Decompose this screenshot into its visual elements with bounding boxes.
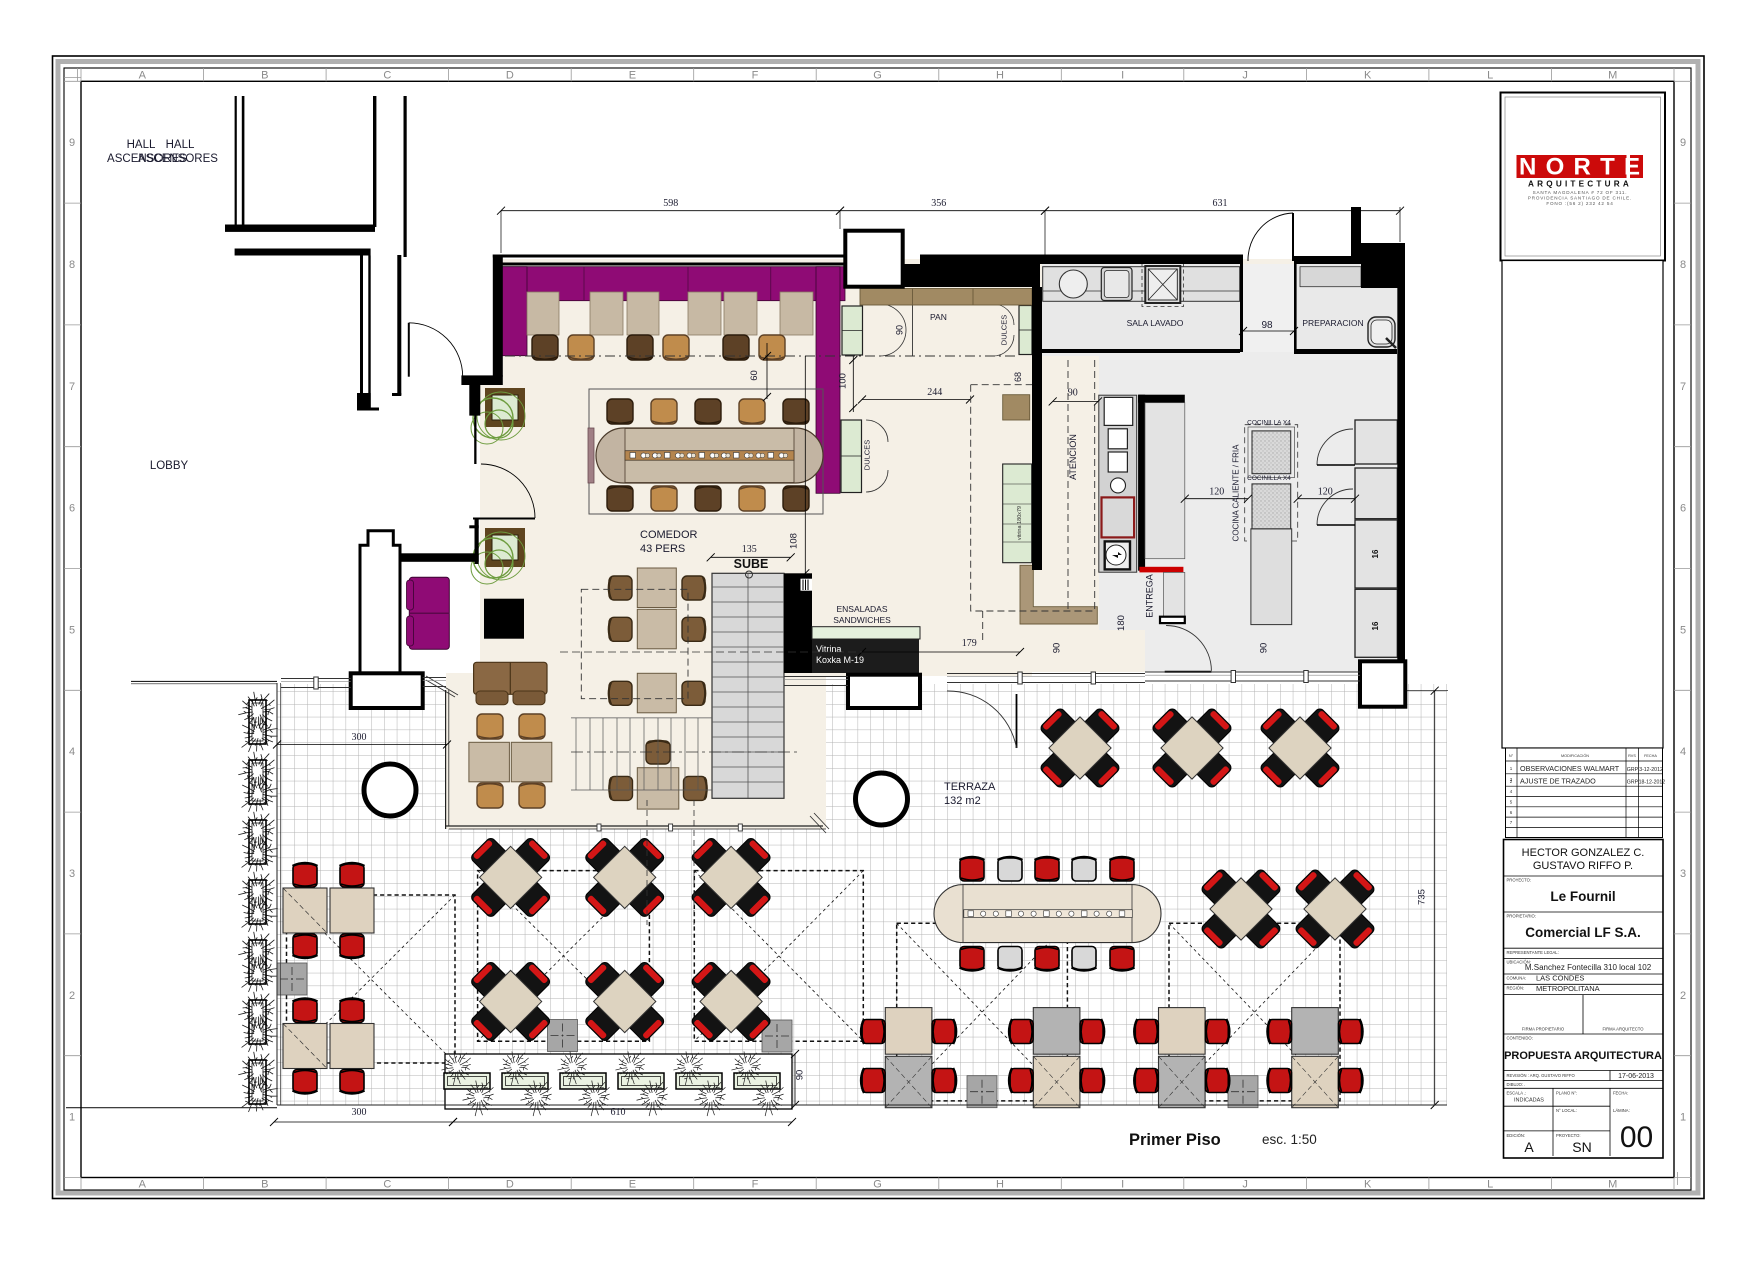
svg-text:3: 3	[69, 868, 75, 880]
svg-text:PROYECTO:: PROYECTO:	[1507, 878, 1532, 883]
svg-text:9: 9	[69, 137, 75, 149]
svg-text:3-12-2012: 3-12-2012	[1639, 767, 1663, 773]
svg-text:120: 120	[1318, 487, 1333, 498]
svg-text:16: 16	[1371, 621, 1380, 630]
svg-text:HECTOR GONZALEZ C.: HECTOR GONZALEZ C.	[1522, 847, 1645, 859]
svg-text:G: G	[873, 1178, 882, 1190]
svg-text:vitrina 180x79: vitrina 180x79	[1017, 506, 1023, 540]
svg-text:Comercial LF S.A.: Comercial LF S.A.	[1525, 925, 1641, 940]
svg-text:FECHA: FECHA	[1644, 754, 1657, 758]
svg-text:18-12-2012: 18-12-2012	[1639, 779, 1666, 785]
svg-text:COMUNA:: COMUNA:	[1507, 975, 1527, 980]
svg-text:16: 16	[1371, 549, 1380, 558]
svg-text:17-06-2013: 17-06-2013	[1618, 1073, 1654, 1080]
svg-text:F: F	[752, 1178, 759, 1190]
svg-text:PLANO N°:: PLANO N°:	[1556, 1091, 1577, 1096]
svg-text:ARQUITECTURA: ARQUITECTURA	[1528, 180, 1632, 189]
svg-text:SALA LAVADO: SALA LAVADO	[1127, 318, 1184, 328]
svg-text:SANTA MAGDALENA # 72 OF 311.: SANTA MAGDALENA # 72 OF 311.	[1533, 190, 1628, 195]
svg-text:1: 1	[1680, 1112, 1686, 1124]
svg-text:A: A	[139, 70, 147, 82]
svg-text:244: 244	[927, 387, 942, 398]
svg-text:M: M	[1608, 70, 1617, 82]
svg-text:D: D	[506, 70, 514, 82]
svg-text:G: G	[873, 70, 882, 82]
svg-text:735: 735	[1417, 889, 1428, 905]
svg-text:DIBUJO: .: DIBUJO: .	[1507, 1082, 1526, 1087]
svg-text:AJUSTE DE TRAZADO: AJUSTE DE TRAZADO	[1520, 776, 1596, 785]
svg-text:REPRESENTANTE LEGAL:: REPRESENTANTE LEGAL:	[1507, 950, 1559, 955]
svg-text:6: 6	[69, 503, 75, 515]
svg-text:610: 610	[611, 1107, 626, 1118]
svg-text:356: 356	[931, 198, 946, 209]
svg-text:J: J	[1242, 1178, 1248, 1190]
svg-text:300: 300	[352, 732, 367, 743]
svg-text:SANDWICHES: SANDWICHES	[833, 615, 891, 625]
svg-text:I: I	[1121, 70, 1124, 82]
svg-text:90: 90	[1259, 643, 1270, 654]
svg-text:INDICADAS: INDICADAS	[1514, 1098, 1544, 1104]
svg-text:REGIÓN:: REGIÓN:	[1507, 986, 1525, 991]
svg-text:B: B	[261, 70, 268, 82]
svg-text:6: 6	[1680, 503, 1686, 515]
svg-text:SN: SN	[1572, 1139, 1591, 1155]
svg-text:E: E	[629, 1178, 636, 1190]
svg-text:90: 90	[1068, 388, 1078, 399]
svg-text:L: L	[1487, 70, 1493, 82]
svg-text:120: 120	[1209, 487, 1224, 498]
svg-text:RVS: RVS	[1628, 754, 1636, 758]
svg-text:A: A	[1524, 1139, 1534, 1155]
svg-text:FIRMA PROPIETARIO: FIRMA PROPIETARIO	[1522, 1027, 1565, 1032]
svg-text:ASCENSORES: ASCENSORES	[138, 153, 218, 165]
svg-text:DULCES: DULCES	[1000, 315, 1009, 345]
svg-text:GUSTAVO RIFFO P.: GUSTAVO RIFFO P.	[1533, 860, 1633, 872]
svg-text:3: 3	[1680, 868, 1686, 880]
svg-text:PREPARACION: PREPARACION	[1302, 318, 1363, 328]
svg-text:5: 5	[1680, 624, 1686, 636]
svg-text:L: L	[1487, 1178, 1493, 1190]
svg-text:9: 9	[1680, 137, 1686, 149]
svg-text:M.Sanchez Fontecilla 310 local: M.Sanchez Fontecilla 310 local 102	[1525, 963, 1652, 972]
svg-text:REVISIÓN : ARQ. GUSTAVO RIFF: REVISIÓN : ARQ. GUSTAVO RIFFO	[1507, 1073, 1576, 1078]
svg-text:98: 98	[1261, 320, 1273, 331]
svg-text:2: 2	[69, 990, 75, 1002]
svg-text:179: 179	[962, 638, 977, 649]
svg-text:K: K	[1364, 1178, 1372, 1190]
svg-text:68: 68	[1013, 372, 1023, 382]
svg-text:COCINILLA X4: COCINILLA X4	[1247, 475, 1291, 482]
svg-text:5: 5	[69, 624, 75, 636]
svg-text:PROPIETARIO:: PROPIETARIO:	[1507, 914, 1536, 919]
svg-text:I: I	[1121, 1178, 1124, 1190]
svg-text:PROYECTO:: PROYECTO:	[1556, 1133, 1581, 1138]
svg-text:H: H	[996, 70, 1004, 82]
svg-text:LAS CONDES: LAS CONDES	[1536, 974, 1584, 983]
svg-text:HALL: HALL	[127, 139, 156, 151]
svg-text:Vitrina: Vitrina	[816, 644, 841, 654]
svg-text:90: 90	[895, 325, 905, 335]
svg-text:SUBE: SUBE	[734, 557, 769, 571]
svg-text:C: C	[383, 70, 391, 82]
svg-text:108: 108	[789, 533, 800, 549]
svg-text:GRP: GRP	[1627, 779, 1639, 785]
svg-text:J: J	[1242, 70, 1248, 82]
svg-text:HALL: HALL	[166, 139, 195, 151]
svg-text:M: M	[1608, 1178, 1617, 1190]
svg-text:4: 4	[1680, 746, 1686, 758]
svg-text:N° LOCAL:: N° LOCAL:	[1556, 1108, 1577, 1113]
svg-text:LOBBY: LOBBY	[150, 460, 189, 472]
svg-text:132 m2: 132 m2	[944, 795, 981, 807]
svg-text:FONO :(56 2) 232 42 54: FONO :(56 2) 232 42 54	[1546, 201, 1613, 206]
svg-text:METROPOLITANA: METROPOLITANA	[1536, 984, 1600, 993]
svg-text:C: C	[383, 1178, 391, 1190]
svg-text:N°: N°	[1509, 754, 1514, 758]
svg-text:180: 180	[1116, 615, 1127, 631]
svg-text:COCINA CALIENTE / FRIA: COCINA CALIENTE / FRIA	[1232, 444, 1241, 542]
svg-text:Koxka M-19: Koxka M-19	[816, 655, 864, 665]
svg-text:FECHA:: FECHA:	[1613, 1091, 1628, 1096]
svg-text:8: 8	[69, 259, 75, 271]
svg-text:GRP: GRP	[1627, 767, 1639, 773]
svg-text:EDICIÓN:: EDICIÓN:	[1507, 1133, 1526, 1138]
svg-text:DULCES: DULCES	[863, 440, 872, 470]
svg-text:1: 1	[69, 1112, 75, 1124]
svg-text:2: 2	[1680, 990, 1686, 1002]
svg-text:MODIFICACIÓN: MODIFICACIÓN	[1561, 753, 1589, 758]
svg-text:ATENCION: ATENCION	[1068, 434, 1078, 480]
svg-text:LÁMINA:: LÁMINA:	[1613, 1108, 1630, 1113]
svg-text:OBSERVACIONES WALMART: OBSERVACIONES WALMART	[1520, 764, 1620, 773]
svg-text:598: 598	[663, 198, 678, 209]
svg-text:8: 8	[1680, 259, 1686, 271]
svg-text:ENSALADAS: ENSALADAS	[836, 604, 887, 614]
svg-text:00: 00	[1620, 1121, 1653, 1154]
svg-text:FIRMA ARQUITECTO: FIRMA ARQUITECTO	[1602, 1027, 1644, 1032]
svg-text:PROVIDENCIA SANTIAGO DE CHILE.: PROVIDENCIA SANTIAGO DE CHILE.	[1528, 196, 1632, 201]
svg-text:100: 100	[838, 373, 849, 389]
svg-text:A: A	[139, 1178, 147, 1190]
svg-text:CONTENIDO:: CONTENIDO:	[1507, 1036, 1533, 1041]
svg-text:D: D	[506, 1178, 514, 1190]
svg-text:135: 135	[742, 544, 757, 555]
svg-text:7: 7	[1680, 381, 1686, 393]
svg-text:ESCALA .:: ESCALA .:	[1507, 1091, 1527, 1096]
svg-text:E: E	[629, 70, 636, 82]
svg-text:PAN: PAN	[930, 312, 947, 322]
svg-text:300: 300	[352, 1107, 367, 1118]
svg-text:K: K	[1364, 70, 1372, 82]
svg-text:COMEDOR: COMEDOR	[640, 529, 698, 541]
svg-text:60: 60	[749, 370, 760, 381]
svg-text:Le Fournil: Le Fournil	[1550, 889, 1615, 904]
svg-text:B: B	[261, 1178, 268, 1190]
svg-text:ENTREGA: ENTREGA	[1145, 574, 1155, 618]
svg-text:H: H	[996, 1178, 1004, 1190]
svg-text:7: 7	[69, 381, 75, 393]
svg-text:43 PERS: 43 PERS	[640, 543, 685, 555]
svg-text:90: 90	[1052, 643, 1063, 654]
svg-text:COCINILLA X4: COCINILLA X4	[1247, 420, 1291, 427]
svg-text:631: 631	[1213, 198, 1228, 209]
svg-text:4: 4	[69, 746, 75, 758]
svg-text:PROPUESTA ARQUITECTURA: PROPUESTA ARQUITECTURA	[1504, 1050, 1662, 1062]
svg-text:esc. 1:50: esc. 1:50	[1262, 1132, 1317, 1147]
svg-text:TERRAZA: TERRAZA	[944, 781, 996, 793]
svg-text:Primer Piso: Primer Piso	[1129, 1131, 1221, 1149]
svg-text:90: 90	[795, 1070, 806, 1081]
svg-text:F: F	[752, 70, 759, 82]
